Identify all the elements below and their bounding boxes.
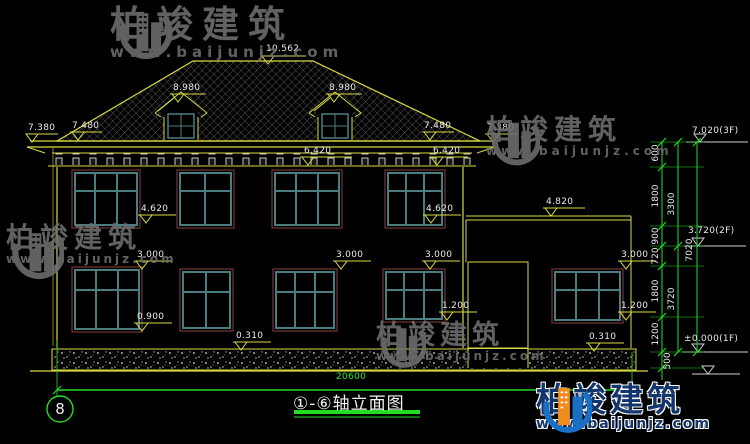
- chain-1800b: 1800: [651, 280, 661, 303]
- logo-icon: [376, 322, 426, 372]
- axis-bubble-number: 8: [55, 400, 65, 418]
- plinth: [30, 349, 648, 371]
- dim-total-width: 20600: [336, 372, 366, 382]
- chain-1800a: 1800: [651, 185, 661, 208]
- window-2f-b: [177, 170, 234, 228]
- chain-1200: 1200: [651, 323, 661, 346]
- chain-720: 720: [651, 247, 661, 264]
- window-2f-c: [272, 170, 342, 228]
- chain-500: 500: [663, 352, 673, 369]
- level-1f: ±0.000(1F): [684, 334, 738, 344]
- dim-win1-top-d: 3.000: [621, 250, 648, 260]
- dim-plinth-left: 0.310: [236, 331, 263, 341]
- logo-icon: [486, 116, 540, 170]
- dim-sill1-a: 0.900: [137, 312, 164, 322]
- logo-icon: [6, 224, 64, 286]
- window-1f-d: [383, 269, 445, 322]
- dim-sill1-d: 1.200: [621, 301, 648, 311]
- logo-icon: [110, 6, 174, 64]
- dim-win1-top-b: 3.000: [336, 250, 363, 260]
- dim-cornice-right: 6.420: [433, 146, 460, 156]
- watermark-left: 柏竣建筑 www.baijunjz.com: [6, 224, 177, 267]
- window-2f-d: [385, 170, 445, 228]
- window-1f-b: [180, 269, 233, 331]
- watermark-top: 柏竣建筑 www.baijunjz.com: [110, 6, 343, 62]
- cad-elevation-screenshot: 10.562 8.980 8.980 7.380 7.480 7.480 7.3…: [0, 0, 750, 444]
- chain-900: 900: [651, 227, 661, 244]
- dim-dormer-left: 8.980: [173, 83, 200, 93]
- dim-eave-left: 7.480: [72, 121, 99, 131]
- dim-sill2-left: 4.620: [141, 204, 168, 214]
- cornice: [27, 141, 495, 166]
- watermark-right: 柏竣建筑 www.baijunjz.com: [486, 116, 673, 159]
- hip-roof: [57, 61, 480, 141]
- window-2f-a: [72, 170, 140, 228]
- dim-cornice-left: 6.420: [304, 146, 331, 156]
- dim-sill2-right: 4.620: [426, 204, 453, 214]
- chain-7020: 7020: [685, 239, 695, 262]
- dim-win1-top-c: 3.000: [425, 250, 452, 260]
- dim-eave-right: 7.480: [424, 121, 451, 131]
- drawing-title: ①-⑥轴立面图: [293, 389, 405, 414]
- dim-sill1-c: 1.200: [442, 301, 469, 311]
- level-3f: 7.020(3F): [692, 126, 738, 136]
- window-1f-a: [72, 267, 142, 332]
- level-2f: 3.720(2F): [688, 226, 734, 236]
- brand-logo-icon: [536, 383, 592, 437]
- window-wing: [552, 269, 623, 323]
- dim-eave-far-left: 7.380: [28, 123, 55, 133]
- dim-dormer-right: 8.980: [329, 83, 356, 93]
- brand-logo: 柏竣建筑 www.baijunjz.com: [536, 383, 711, 434]
- chain-3720: 3720: [667, 288, 677, 311]
- dim-wing-roof: 4.820: [546, 197, 573, 207]
- watermark-bottom: 柏竣建筑 www.baijunjz.com: [376, 322, 547, 364]
- dim-plinth-right: 0.310: [589, 332, 616, 342]
- chain-3300: 3300: [667, 193, 677, 216]
- window-1f-c: [273, 269, 337, 331]
